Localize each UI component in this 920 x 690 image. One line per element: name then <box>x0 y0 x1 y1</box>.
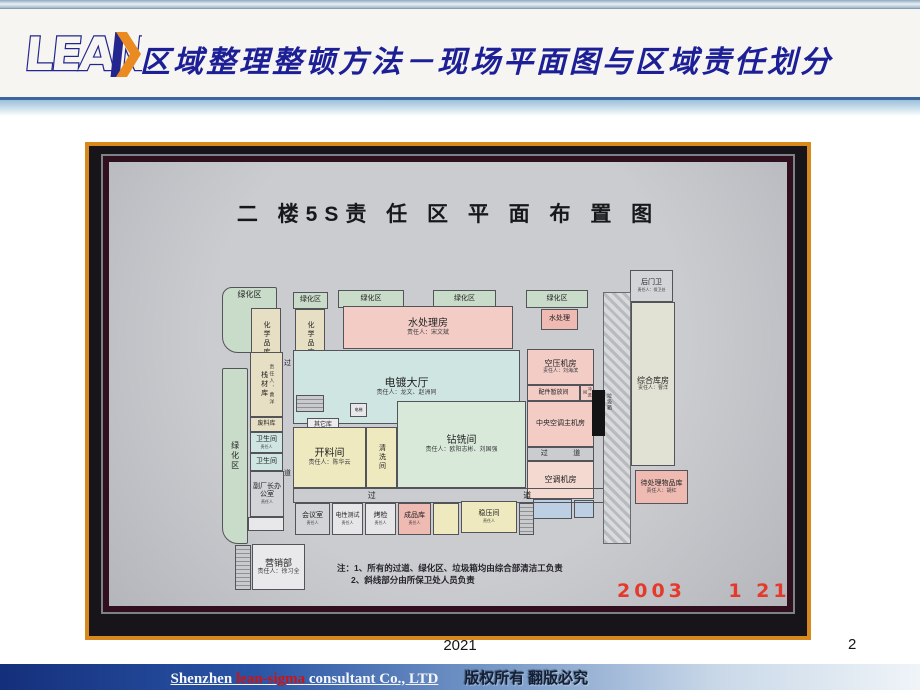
page-title: 区域整理整顿方法－现场平面图与区域责任划分 <box>140 37 910 81</box>
pending-items-store: 待处理物品库责任人：胡红 <box>635 470 688 504</box>
small-room-1 <box>248 517 284 531</box>
green-area-left: 绿化区 <box>222 368 248 544</box>
cleaning-room: 清洗间 <box>366 427 397 488</box>
slide-header: LEAN 区域整理整顿方法－现场平面图与区域责任划分 <box>0 9 920 97</box>
restroom-1: 卫生间责任人 <box>250 432 283 453</box>
corridor-char-top: 过 <box>282 358 293 371</box>
slide-canvas: LEAN 区域整理整顿方法－现场平面图与区域责任划分 二 楼5S责 任 区 平 … <box>0 0 920 690</box>
deputy-director-office: 副厂长办公室责任人 <box>250 471 284 517</box>
green-area-2: 绿化区 <box>293 292 328 309</box>
waste-store: 废料库 <box>250 417 283 432</box>
finished-goods-store: 成品库责任人 <box>398 503 431 535</box>
board-note-1: 注：1、所有的过道、绿化区、垃圾箱均由综合部清洁工负责 <box>337 562 563 574</box>
water-treatment-small: 水处理 <box>541 309 578 330</box>
footer-company-prefix: Shenzhen <box>171 671 236 687</box>
floor-plan-photo: 二 楼5S责 任 区 平 面 布 置 图 绿化区绿化区绿化区绿化区绿化区化学品库… <box>85 142 811 640</box>
lean-logo: LEAN <box>16 25 142 88</box>
top-sky-strip <box>0 0 920 9</box>
guard-hatched-area <box>603 292 631 544</box>
footer-bar: Shenzhen lean-sigma consultant Co., LTD版… <box>0 664 920 690</box>
board-date: 2003 1 21 <box>617 580 791 602</box>
corridor-main: 过道 <box>293 488 606 503</box>
voltage-regulator-room: 稳压间责任人 <box>461 501 517 533</box>
marketing-dept: 营销部责任人：徐习全 <box>252 544 305 590</box>
trash-bin-label: 垃圾箱 <box>606 393 613 411</box>
header-sky-band <box>0 100 920 116</box>
central-ac-room: 中央空调主机房 <box>527 401 594 447</box>
parts-staging-room: 配件暂放间 <box>527 385 580 401</box>
drilling-milling-room: 钻铣间责任人：欧阳志彬、刘国强 <box>397 401 526 488</box>
corridor-right: 过道 <box>527 447 594 461</box>
green-area-5: 绿化区 <box>526 290 588 308</box>
elevator: 电梯 <box>350 403 367 417</box>
bake-inspection-room: 烤检责任人 <box>365 503 396 535</box>
back-gate-guard: 后门卫责任人：保卫处 <box>630 270 673 302</box>
electrical-test-room: 电性测试责任人 <box>332 503 363 535</box>
air-compressor-room: 空压机房责任人：刘海滨 <box>527 349 594 385</box>
cutting-room: 开料间责任人：陈华云 <box>293 427 366 488</box>
board-note-2: 2、斜线部分由所保卫处人员负责 <box>351 574 475 586</box>
stairs-mid <box>296 395 324 412</box>
restroom-2: 卫生间 <box>250 453 283 471</box>
footer-company-highlight: lean-sigma <box>236 671 305 687</box>
meeting-room: 会议室责任人 <box>295 503 330 535</box>
stairs-right <box>519 503 534 535</box>
corridor-char-bottom: 道 <box>282 468 293 481</box>
footer-company-name: Shenzhen lean-sigma consultant Co., LTD <box>171 671 439 687</box>
footer-text: Shenzhen lean-sigma consultant Co., LTD版… <box>148 650 588 690</box>
lean-logo-graphic: LEAN <box>16 25 142 83</box>
rack-material-store: 栈材库责任人、曹洋 <box>250 352 283 417</box>
board-title: 二 楼5S责 任 区 平 面 布 置 图 <box>89 198 807 228</box>
footer-copyright: 版权所有 翻版必究 <box>464 671 588 687</box>
room-blank-yellow <box>433 503 459 535</box>
trash-bin-box <box>592 390 605 436</box>
page-number: 2 <box>848 636 856 653</box>
general-warehouse: 综合库房责任人：曹洋 <box>631 302 675 466</box>
water-treatment-room: 水处理房责任人：宋文斌 <box>343 306 513 349</box>
footer-company-suffix: consultant Co., LTD <box>305 671 438 687</box>
stairs-bottom-left <box>235 545 251 590</box>
